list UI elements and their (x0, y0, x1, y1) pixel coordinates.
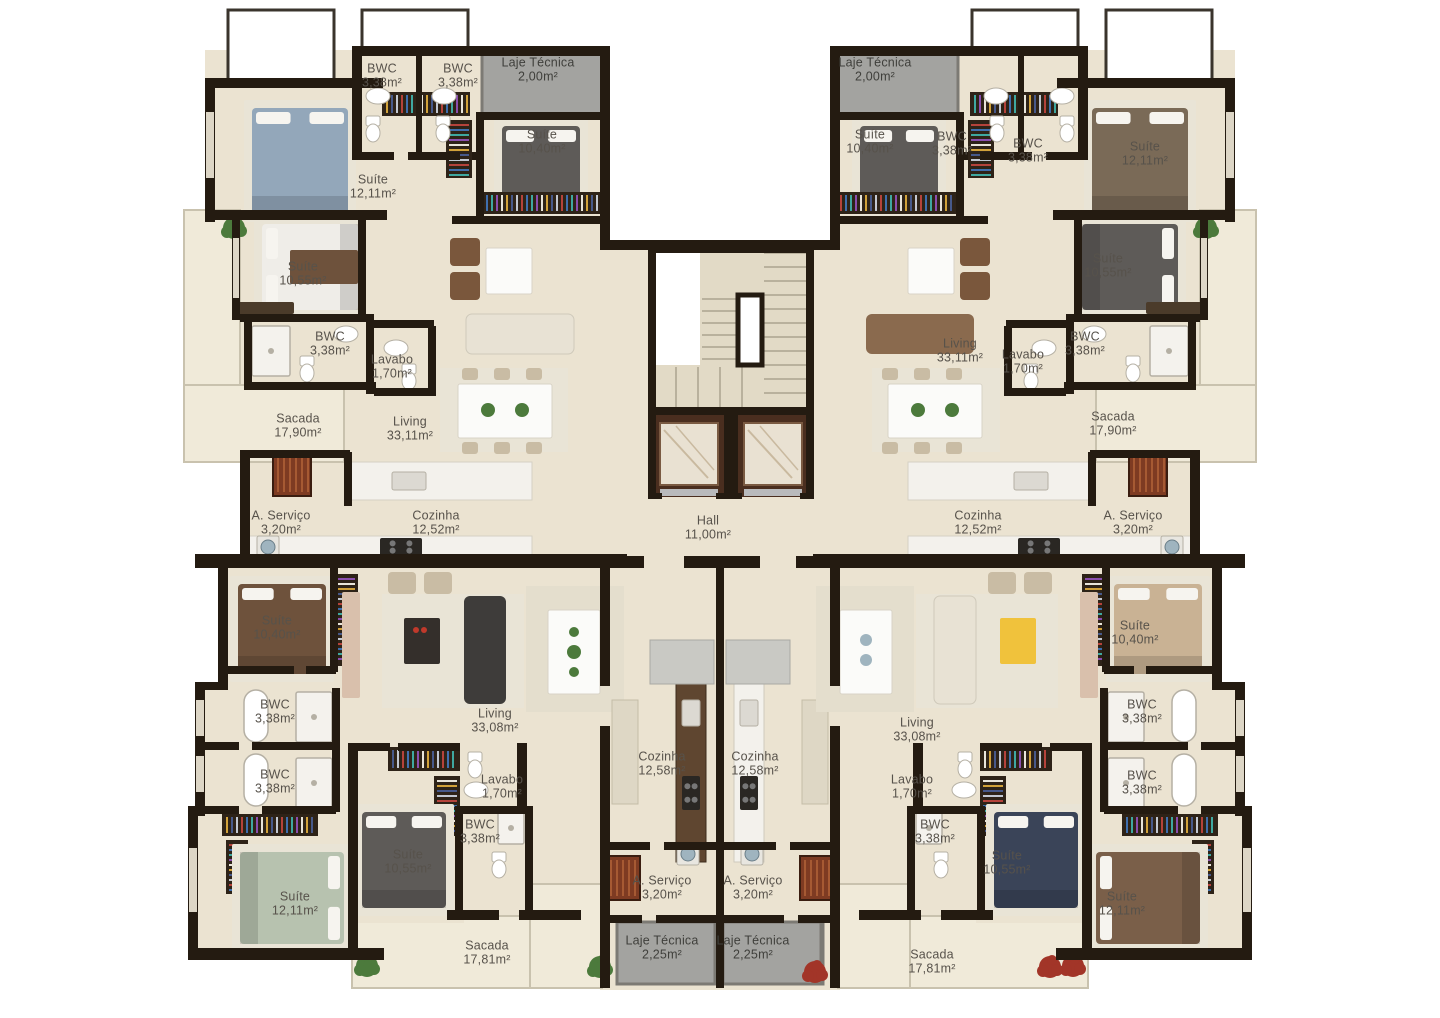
grill-l-bar (628, 860, 630, 896)
cooktop-tl (380, 538, 422, 556)
wardrobe-tr-3-s (905, 195, 907, 211)
wardrobe-br-2-s (1186, 817, 1188, 833)
wardrobe-tr-3-s (890, 195, 892, 211)
wardrobe-bl-2-s (236, 817, 238, 833)
dresser-tl (234, 302, 294, 314)
table-plant-bl (569, 627, 579, 637)
wall-segment (716, 568, 724, 988)
wall-segment (1053, 210, 1235, 220)
wardrobe-br-4-s (999, 750, 1001, 768)
wardrobe-tr-3-s (860, 195, 862, 211)
wall-segment (262, 806, 336, 814)
bed-suite1211-bl-pillow (328, 907, 340, 940)
vent-box (972, 10, 1078, 52)
wardrobe-br-5-s (983, 800, 1003, 802)
chair-tr (882, 442, 898, 454)
dining-table-br (840, 610, 892, 694)
wardrobe-br-2-s (1191, 817, 1193, 833)
wardrobe-bl-2-s (271, 817, 273, 833)
wall-segment (956, 120, 964, 222)
cooktop-tl (406, 548, 412, 554)
table-deco-br (860, 654, 872, 666)
plant-sacada-br3 (1051, 964, 1063, 976)
deco-bl (421, 627, 427, 633)
counter-top-r (726, 640, 790, 684)
wardrobe-bl-4-s (437, 750, 439, 768)
cabinet-kitchen-r (802, 700, 828, 804)
chair-tl (494, 368, 510, 380)
wardrobe-br-4-s (1039, 750, 1041, 768)
wardrobe-br-2-s (1161, 817, 1163, 833)
wall-segment (830, 556, 840, 686)
sink-kitchen-l (682, 700, 700, 726)
wardrobe-tr-1-s (1024, 95, 1026, 113)
wall-segment (344, 452, 352, 506)
elevator-right-cab (744, 423, 802, 485)
wardrobe-bl-4-s (422, 750, 424, 768)
wardrobe-br-2-s (1211, 817, 1213, 833)
wall-segment (1064, 382, 1196, 390)
wardrobe-tl-3-s (556, 195, 558, 211)
wardrobe-tr-1-s (1044, 95, 1046, 113)
grill-l-bar (634, 860, 636, 896)
armchair-tr (960, 272, 990, 300)
wall-segment (648, 245, 656, 417)
wardrobe-br-4-s (1004, 750, 1006, 768)
dining-table-tr (888, 384, 982, 438)
grill-r-bar (828, 860, 830, 896)
wardrobe-tr-2-s (971, 169, 991, 171)
grill-tr-bar (1157, 456, 1159, 492)
laje-tecnica-box (838, 52, 958, 114)
wardrobe-br-2-s (1151, 817, 1153, 833)
wall-segment (1050, 743, 1082, 751)
wall-segment (1006, 320, 1068, 328)
grill-r-bar (822, 860, 824, 896)
sacada-floor (838, 884, 910, 988)
wall-segment (203, 806, 239, 814)
cooktop-l (684, 783, 690, 789)
chair-tl (526, 442, 542, 454)
wardrobe-tl-2-s (449, 174, 469, 176)
chair-tr (882, 368, 898, 380)
wardrobe-bl-2-s (301, 817, 303, 833)
wardrobe-br-4-s (994, 750, 996, 768)
wardrobe-tr-1-s (974, 95, 976, 113)
armchair-br (1024, 572, 1052, 594)
sink-lavabo-bl (464, 782, 488, 798)
wardrobe-tr-3-s (900, 195, 902, 211)
wardrobe-tl-2-s (449, 169, 469, 171)
armchair-br (988, 572, 1016, 594)
wall-segment (408, 152, 460, 160)
wardrobe-br-2-s (1206, 817, 1208, 833)
bed-suite1040-tr-pillow (864, 130, 892, 142)
wall-segment (1046, 152, 1088, 160)
bed-suite1040-br-pillow (1166, 588, 1198, 600)
wardrobe-br-5-s (983, 785, 1003, 787)
wall-segment (1008, 388, 1066, 396)
wardrobe-bl-4-s (452, 750, 454, 768)
wardrobe-tr-2-s (971, 149, 991, 151)
armchair-bl (388, 572, 416, 594)
window (196, 700, 204, 736)
bed-suite1040-tl-pillow (506, 130, 534, 142)
wardrobe-br-4-s (1044, 750, 1046, 768)
sink-kitchen-r (740, 700, 758, 726)
wall-segment (1190, 450, 1200, 564)
sofa-br (934, 596, 976, 704)
wardrobe-tr-2-s (971, 164, 991, 166)
wardrobe-br-2-s (1181, 817, 1183, 833)
cooktop-r (742, 797, 748, 803)
wall-segment (1146, 666, 1218, 674)
chair-tr (914, 442, 930, 454)
deco-bl (413, 627, 419, 633)
wall-segment (1104, 806, 1178, 814)
wardrobe-br-2-s (1126, 817, 1128, 833)
bed-suite1055-tl-pillow (266, 275, 278, 306)
wardrobe-br-5-s (983, 780, 1003, 782)
wardrobe-bl-5-s (437, 795, 457, 797)
bed-suite1055-bl-pillow (412, 816, 442, 828)
wardrobe-br-2-s (1166, 817, 1168, 833)
wall-segment (1102, 568, 1110, 672)
wardrobe-bl-4-s (407, 750, 409, 768)
bed-suite1055-tr-fold (1082, 224, 1100, 310)
laje-tecnica-box (482, 52, 602, 114)
table-plant-tr (945, 403, 959, 417)
wardrobe-bl-5-s (437, 790, 457, 792)
wall-segment (1066, 318, 1074, 394)
wardrobe-tl-3-s (586, 195, 588, 211)
bed-suite1040-br-pillow (1118, 588, 1150, 600)
wall-segment (798, 915, 830, 923)
wardrobe-tl-1-s (406, 95, 408, 113)
wardrobe-tl-3-s (511, 195, 513, 211)
sofa-bl (464, 596, 506, 704)
grill-tl-bar (301, 456, 303, 492)
wall-segment (452, 216, 608, 224)
armchair-tl (450, 272, 480, 300)
dining-table-tl (458, 384, 552, 438)
plant-sacada-bl (368, 963, 380, 975)
wardrobe-tr-1-s (1029, 95, 1031, 113)
wall-segment (716, 493, 742, 499)
wall-segment (648, 493, 662, 499)
toilet-lavabo-tl (402, 372, 416, 390)
wall-segment (398, 743, 460, 751)
wardrobe-bl-4-s (397, 750, 399, 768)
wardrobe-bl-2-s (306, 817, 308, 833)
bed-suite1211-tr-pillow (1149, 112, 1184, 124)
shower-bwc2-bl-drain (311, 780, 317, 786)
wardrobe-br-5-s (983, 790, 1003, 792)
grill-l-bar (616, 860, 618, 896)
wardrobe-tl-3-s (561, 195, 563, 211)
bed-suite1055-tr-pillow (1162, 228, 1174, 259)
wardrobe-bl-2-s (251, 817, 253, 833)
wardrobe-br-2-s (1176, 817, 1178, 833)
toilet-lavabo-tr (1024, 372, 1038, 390)
wardrobe-bl-2-s (276, 817, 278, 833)
plant-sacada-br (816, 969, 828, 981)
cooktop-tr (1018, 538, 1060, 556)
wardrobe-bl-5-s (437, 800, 457, 802)
dresser-tr (1146, 302, 1206, 314)
wardrobe-tl-2-s (449, 124, 469, 126)
cooktop-tr (1028, 548, 1034, 554)
wardrobe-tl-3-s (596, 195, 598, 211)
chair-tl (462, 368, 478, 380)
bed-suite1211-bl-pillow (328, 856, 340, 889)
wardrobe-br-2-s (1196, 817, 1198, 833)
armchair-bl (424, 572, 452, 594)
wardrobe-bl-2-s (311, 817, 313, 833)
wardrobe-tl-1-s (396, 95, 398, 113)
sink-bwc3-tr (1082, 326, 1106, 342)
chair-tl (526, 368, 542, 380)
wardrobe-tl-1-s (426, 95, 428, 113)
cooktop-l (692, 797, 698, 803)
window (1243, 848, 1251, 912)
wall-segment (600, 556, 610, 686)
plant-sacada-tl (221, 226, 233, 238)
wall-segment (664, 842, 716, 850)
wardrobe-bl-2-s (256, 817, 258, 833)
sink-kitchen-tr (1014, 472, 1048, 490)
wall-segment (907, 806, 915, 918)
wardrobe-tr-1-s (1039, 95, 1041, 113)
wardrobe-bl-2-s (241, 817, 243, 833)
sink-kitchen-tl (392, 472, 426, 490)
wall-segment (240, 314, 374, 322)
wardrobe-tl-2-s (449, 139, 469, 141)
wardrobe-tl-3-s (546, 195, 548, 211)
wall-segment (240, 450, 350, 458)
window (1226, 112, 1234, 178)
wardrobe-tl-1-s (411, 95, 413, 113)
bed-suite1055-br-pillow (998, 816, 1028, 828)
wardrobe-br-2-s (1131, 817, 1133, 833)
cooktop-r (750, 783, 756, 789)
wall-segment (648, 413, 656, 499)
toilet-bwc2-tr (990, 124, 1004, 142)
bed-suite1055-tr-pillow (1162, 275, 1174, 306)
wall-segment (416, 56, 422, 156)
wardrobe-bl-1-s (337, 583, 355, 585)
counter-tl (348, 462, 532, 500)
wardrobe-br-2-s (1146, 817, 1148, 833)
chair-tr (946, 442, 962, 454)
wall-segment (859, 910, 921, 920)
wardrobe-bl-1-s (337, 588, 355, 590)
wardrobe-tr-3-s (865, 195, 867, 211)
wardrobe-tl-3-s (541, 195, 543, 211)
wardrobe-bl-4-s (432, 750, 434, 768)
wardrobe-tl-3-s (581, 195, 583, 211)
cabinet-kitchen-l (612, 700, 638, 804)
wardrobe-tr-2-s (971, 129, 991, 131)
wall-segment (240, 450, 250, 564)
shower-bwc3-tl-drain (268, 348, 274, 354)
cooktop-r (740, 776, 758, 810)
plant-sacada-br3 (1047, 955, 1057, 965)
toilet-bwc3-tl (300, 364, 314, 382)
wall-segment (980, 743, 1042, 751)
wall-segment (366, 318, 374, 394)
window (196, 756, 204, 792)
window (206, 112, 214, 178)
wardrobe-tl-3-s (486, 195, 488, 211)
coffee-table-tr (908, 248, 954, 294)
chair-tr (946, 368, 962, 380)
wall-segment (800, 493, 814, 499)
cooktop-tl (390, 540, 396, 546)
wall-segment (1082, 743, 1092, 958)
wall-segment (1188, 318, 1196, 390)
wardrobe-br-5-s (983, 795, 1003, 797)
laje-tecnica-box (617, 922, 715, 984)
tv-rack-bl (342, 592, 360, 698)
bed-suite1211-tl-pillow (256, 112, 291, 124)
wardrobe-tl-3-s (531, 195, 533, 211)
bed-suite1211-bl-fold (240, 852, 258, 944)
wall-segment (941, 910, 993, 920)
window (1236, 756, 1244, 792)
cooktop-r (742, 783, 748, 789)
wall-segment (352, 46, 362, 160)
grill-tr-bar (1145, 456, 1147, 492)
vent-box (228, 10, 334, 80)
grill-l-bar (610, 860, 612, 896)
wardrobe-br-2-s (1171, 817, 1173, 833)
wardrobe-bl-4-s (427, 750, 429, 768)
wardrobe-bl-4-s (402, 750, 404, 768)
wall-segment (980, 152, 1032, 160)
toilet-bwc1-tr (1060, 124, 1074, 142)
wardrobe-br-1-s (1085, 583, 1103, 585)
wall-segment (907, 806, 985, 814)
wardrobe-tr-3-s (840, 195, 842, 211)
wardrobe-tl-2-s (449, 129, 469, 131)
grill-l-bar (622, 860, 624, 896)
wardrobe-bl-4-s (447, 750, 449, 768)
tub-bwc1-bl (244, 690, 268, 742)
wardrobe-tl-2-s (449, 164, 469, 166)
wardrobe-tl-3-s (566, 195, 568, 211)
bed-suite1040-tr-pillow (906, 130, 934, 142)
wall-segment (358, 220, 366, 322)
wall-segment (1074, 220, 1082, 322)
wardrobe-br-4-s (989, 750, 991, 768)
tub-bwc1-br (1172, 690, 1196, 742)
plant-sacada-br2 (1074, 963, 1086, 975)
wardrobe-tl-2-s (449, 144, 469, 146)
vent-box (1106, 10, 1212, 80)
grill-tl-bar (307, 456, 309, 492)
wall-segment (790, 842, 830, 850)
wardrobe-tr-3-s (910, 195, 912, 211)
toilet-bwc3-bl (492, 860, 506, 878)
grill-tl-bar (277, 456, 279, 492)
wardrobe-tl-3-s (516, 195, 518, 211)
wardrobe-tr-3-s (855, 195, 857, 211)
sink-bwc1-tl (366, 88, 390, 104)
wardrobe-tr-3-s (895, 195, 897, 211)
plant-sacada-br (802, 970, 814, 982)
wall-segment (306, 666, 336, 674)
wall-segment (648, 245, 814, 253)
table-deco-br (860, 634, 872, 646)
wardrobe-tr-3-s (920, 195, 922, 211)
wardrobe-tr-2-s (971, 124, 991, 126)
wall-segment (252, 742, 336, 750)
wall-segment (832, 112, 964, 120)
wardrobe-tr-1-s (1014, 95, 1016, 113)
bed-suite1055-tl-pillow (266, 228, 278, 259)
wall-segment (1104, 666, 1134, 674)
wardrobe-bl-2-s (231, 817, 233, 833)
grill-r-bar (804, 860, 806, 896)
wall-segment (1004, 326, 1012, 396)
wall-segment (1088, 452, 1096, 506)
toilet-bwc2-tl (436, 124, 450, 142)
plant-sacada-bl (587, 965, 599, 977)
grill-tr-bar (1163, 456, 1165, 492)
wardrobe-br-4-s (1029, 750, 1031, 768)
grill-tl-bar (295, 456, 297, 492)
sink-bwc3-tl (334, 326, 358, 342)
wardrobe-tl-3-s (576, 195, 578, 211)
wall-segment (830, 726, 840, 988)
washer-tl-drum (261, 540, 275, 554)
wall-segment (352, 152, 394, 160)
wardrobe-tr-3-s (870, 195, 872, 211)
wardrobe-tl-3-s (496, 195, 498, 211)
wall-segment (348, 743, 358, 958)
wardrobe-bl-4-s (442, 750, 444, 768)
wardrobe-tr-2-s (971, 139, 991, 141)
bed-suite1211-br-pillow (1100, 856, 1112, 889)
table-plant-tr (911, 403, 925, 417)
grill-tr-bar (1151, 456, 1153, 492)
window (1236, 700, 1244, 736)
wardrobe-tr-3-s (950, 195, 952, 211)
coffee-table-tl (486, 248, 532, 294)
shower-bwc2-br-drain (1123, 780, 1129, 786)
sink-bwc1-tr (1050, 88, 1074, 104)
table-plant-bl (569, 667, 579, 677)
wardrobe-tr-3-s (885, 195, 887, 211)
wall-segment (244, 382, 376, 390)
wardrobe-bl-2-s (246, 817, 248, 833)
wall-segment (195, 554, 627, 568)
wardrobe-tl-3-s (506, 195, 508, 211)
wall-segment (195, 742, 239, 750)
toilet-bwc1-tl (366, 124, 380, 142)
wall-segment (610, 915, 642, 923)
wardrobe-tr-3-s (930, 195, 932, 211)
wardrobe-br-2-s (1201, 817, 1203, 833)
cooktop-tl (390, 548, 396, 554)
wall-segment (977, 806, 985, 918)
bed-suite1040-bl-pillow (242, 588, 274, 600)
wardrobe-tl-2-s (449, 149, 469, 151)
cooktop-tl (406, 540, 412, 546)
wardrobe-tr-3-s (940, 195, 942, 211)
bed-suite1040-tl-pillow (548, 130, 576, 142)
